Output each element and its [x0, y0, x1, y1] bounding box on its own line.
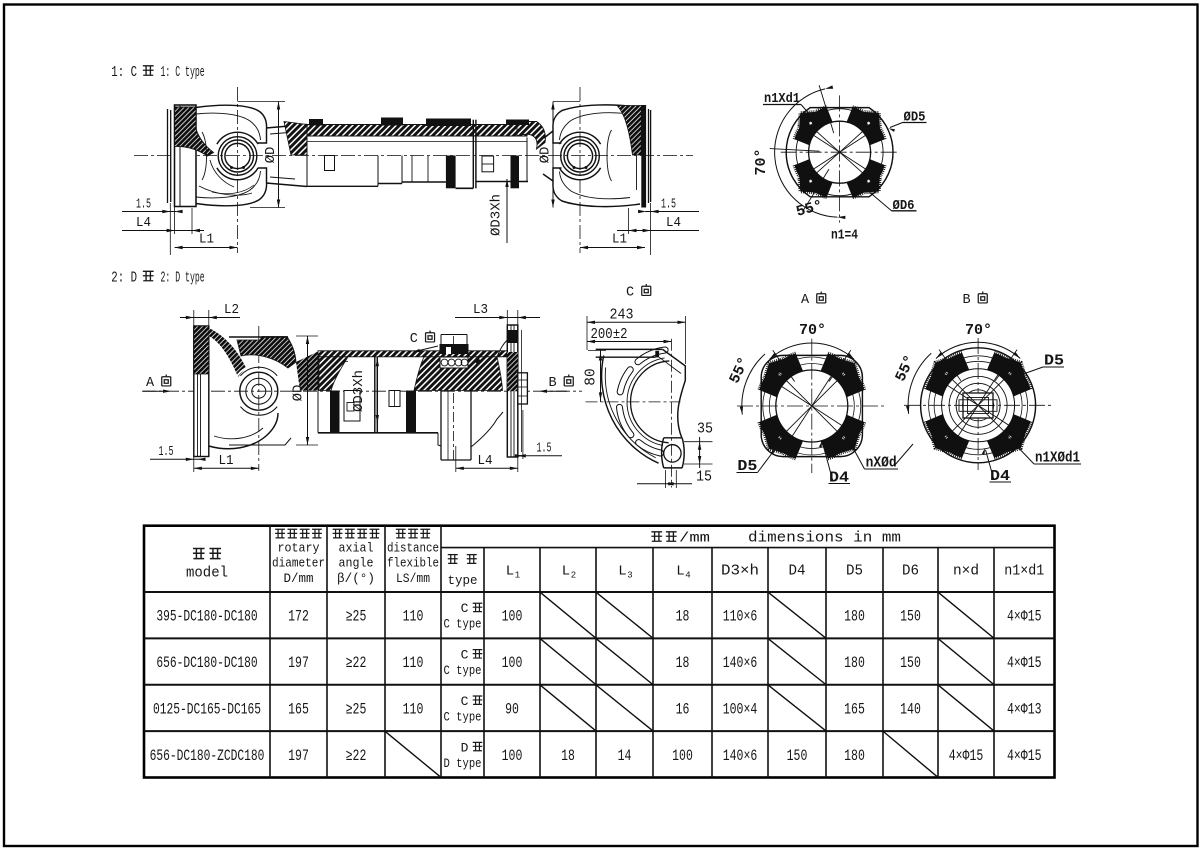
svg-text:150: 150: [900, 654, 921, 672]
svg-text:243: 243: [610, 308, 634, 324]
svg-text:D5: D5: [846, 564, 863, 580]
svg-text:D6: D6: [902, 564, 919, 580]
svg-text:/mm: /mm: [679, 531, 710, 547]
svg-text:C: C: [461, 694, 469, 709]
svg-text:18: 18: [676, 608, 690, 626]
svg-text:L: L: [506, 564, 514, 580]
svg-text:70°: 70°: [799, 322, 826, 339]
svg-text:2: 2: [571, 571, 576, 581]
svg-text:distance: distance: [387, 542, 439, 556]
svg-text:4×Φ15: 4×Φ15: [1007, 747, 1042, 765]
svg-text:395-DC180-DC180: 395-DC180-DC180: [156, 608, 257, 626]
svg-text:C: C: [461, 648, 469, 663]
svg-text:35: 35: [697, 422, 713, 438]
svg-text:ØD: ØD: [263, 147, 279, 164]
svg-text:110: 110: [403, 608, 424, 626]
svg-text:rotary: rotary: [278, 542, 320, 556]
svg-text:172: 172: [288, 608, 309, 626]
svg-text:β/(°): β/(°): [337, 572, 375, 586]
svg-text:1.5: 1.5: [537, 442, 552, 457]
svg-text:LS/mm: LS/mm: [396, 572, 430, 586]
svg-text:C type: C type: [444, 617, 482, 632]
svg-text:L: L: [618, 564, 626, 580]
svg-text:70°: 70°: [753, 148, 770, 175]
svg-text:18: 18: [561, 747, 575, 765]
svg-text:ØD3Xh: ØD3Xh: [351, 370, 367, 412]
svg-text:14: 14: [618, 747, 632, 765]
svg-text:D: D: [461, 740, 469, 755]
svg-text:L: L: [676, 564, 684, 580]
svg-text:n1×d1: n1×d1: [1004, 564, 1044, 580]
svg-text:197: 197: [288, 747, 309, 765]
svg-text:18: 18: [676, 654, 690, 672]
svg-text:1: C: 1: C: [111, 64, 137, 81]
svg-text:C type: C type: [444, 709, 482, 724]
svg-text:ØD3Xh: ØD3Xh: [489, 194, 505, 236]
svg-text:1: 1: [515, 571, 520, 581]
svg-text:4: 4: [685, 571, 690, 581]
svg-text:C: C: [626, 286, 634, 301]
svg-text:ØD: ØD: [538, 147, 554, 164]
svg-text:16: 16: [676, 700, 690, 718]
svg-text:D3×h: D3×h: [721, 564, 759, 580]
svg-text:C: C: [410, 332, 418, 347]
svg-text:≥22: ≥22: [346, 747, 367, 765]
svg-text:L1: L1: [612, 233, 627, 248]
svg-text:4×Φ13: 4×Φ13: [1007, 700, 1042, 718]
svg-text:L4: L4: [136, 216, 151, 231]
svg-text:L2: L2: [224, 303, 239, 318]
svg-text:150: 150: [787, 747, 808, 765]
svg-text:D type: D type: [444, 756, 482, 771]
svg-text:180: 180: [844, 608, 865, 626]
svg-text:3: 3: [627, 571, 632, 581]
svg-text:2: D: 2: D: [111, 270, 137, 287]
svg-text:B: B: [963, 293, 971, 308]
svg-text:80: 80: [584, 368, 600, 385]
svg-text:150: 150: [900, 608, 921, 626]
svg-text:110×6: 110×6: [723, 608, 758, 626]
svg-text:140×6: 140×6: [723, 747, 758, 765]
svg-text:B: B: [549, 376, 557, 391]
svg-text:≥25: ≥25: [346, 608, 367, 626]
svg-text:100: 100: [672, 747, 693, 765]
svg-text:ØD: ØD: [291, 385, 307, 402]
svg-text:A: A: [146, 376, 155, 391]
svg-text:180: 180: [844, 747, 865, 765]
svg-text:1.5: 1.5: [159, 445, 174, 460]
svg-text:L1: L1: [219, 454, 234, 469]
svg-text:140: 140: [900, 700, 921, 718]
svg-text:angle: angle: [339, 557, 374, 571]
svg-text:110: 110: [403, 654, 424, 672]
svg-text:L4: L4: [478, 454, 493, 469]
svg-text:n1=4: n1=4: [831, 228, 858, 244]
svg-text:100: 100: [502, 747, 523, 765]
svg-text:diameter: diameter: [272, 557, 325, 571]
svg-text:165: 165: [844, 700, 865, 718]
svg-text:140×6: 140×6: [723, 654, 758, 672]
svg-text:4×Φ15: 4×Φ15: [1007, 654, 1042, 672]
svg-text:200±2: 200±2: [591, 327, 628, 343]
svg-text:C type: C type: [444, 663, 482, 678]
svg-text:≥22: ≥22: [346, 654, 367, 672]
svg-text:100×4: 100×4: [723, 700, 758, 718]
svg-text:C: C: [461, 601, 469, 616]
svg-text:L4: L4: [666, 216, 681, 231]
svg-text:197: 197: [288, 654, 309, 672]
svg-text:110: 110: [403, 700, 424, 718]
svg-text:656-DC180-DC180: 656-DC180-DC180: [156, 654, 257, 672]
svg-text:180: 180: [844, 654, 865, 672]
svg-text:flexible: flexible: [387, 557, 439, 571]
svg-text:n×d: n×d: [953, 564, 979, 580]
svg-text:L1: L1: [199, 233, 214, 248]
svg-text:model: model: [186, 565, 228, 582]
svg-text:165: 165: [288, 700, 309, 718]
svg-text:≥25: ≥25: [346, 700, 367, 718]
svg-text:L: L: [562, 564, 570, 580]
svg-text:15: 15: [696, 470, 712, 486]
svg-text:L3: L3: [473, 303, 488, 318]
svg-text:1: C type: 1: C type: [161, 64, 205, 81]
svg-text:100: 100: [502, 608, 523, 626]
svg-text:1.5: 1.5: [136, 198, 151, 213]
svg-text:70°: 70°: [965, 322, 992, 339]
svg-text:90: 90: [505, 700, 519, 718]
svg-text:D4: D4: [789, 564, 806, 580]
svg-text:1.5: 1.5: [661, 198, 676, 213]
svg-text:4×Φ15: 4×Φ15: [1007, 608, 1042, 626]
svg-text:656-DC180-ZCDC180: 656-DC180-ZCDC180: [150, 747, 265, 765]
svg-text:A: A: [801, 293, 810, 308]
svg-text:dimensions in mm: dimensions in mm: [748, 531, 901, 547]
svg-text:100: 100: [502, 654, 523, 672]
svg-text:D/mm: D/mm: [284, 572, 314, 586]
svg-text:0125-DC165-DC165: 0125-DC165-DC165: [153, 700, 261, 718]
svg-text:axial: axial: [339, 542, 374, 556]
svg-text:type: type: [448, 573, 478, 588]
svg-text:4×Φ15: 4×Φ15: [949, 747, 984, 765]
svg-text:2: D type: 2: D type: [161, 270, 205, 287]
